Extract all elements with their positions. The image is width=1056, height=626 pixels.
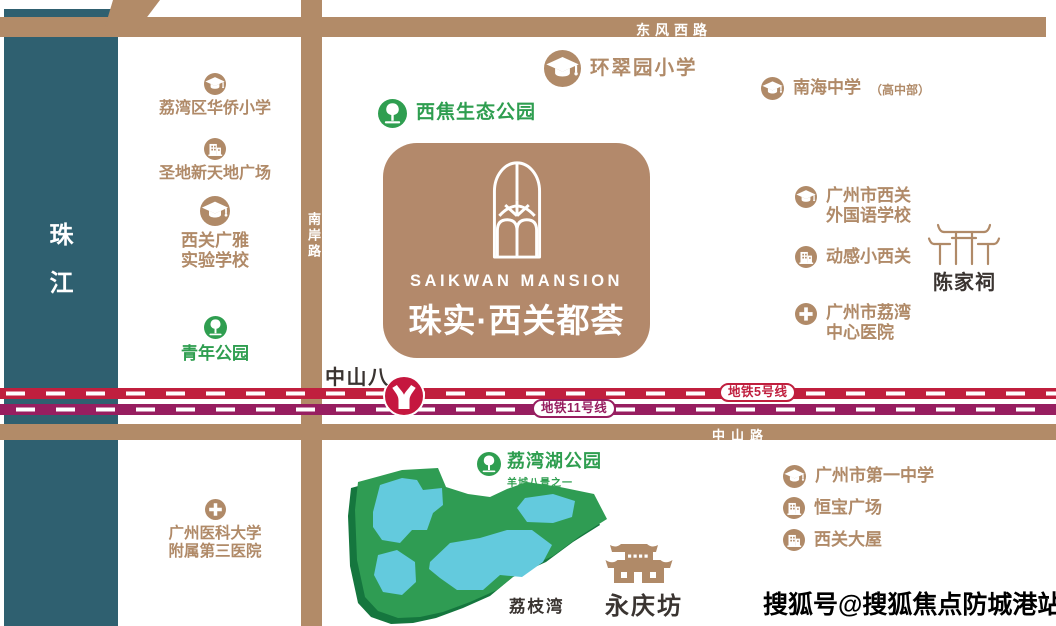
yongqingfang-label: 永庆坊 <box>605 586 683 621</box>
watermark: 搜狐号@搜狐焦点防城港站 <box>763 585 1056 621</box>
poi-donggan-xiao-xiguan: 动感小西关 <box>795 246 911 268</box>
hospital-cross-icon <box>795 303 817 325</box>
poi-liwan-central-hospital: 广州市荔湾 中心医院 <box>795 303 911 343</box>
building-icon <box>783 497 805 519</box>
metro-station-label: 中山八 <box>325 361 390 390</box>
school-icon <box>200 196 230 226</box>
river-label: 珠江 <box>41 222 76 318</box>
property-name-zh: 珠实·西关都荟 <box>409 294 625 342</box>
poi-guangzhou-no1-middle-school: 广州市第一中学 <box>783 465 934 488</box>
yongqingfang-landmark: 永庆坊 <box>598 534 690 621</box>
school-icon <box>783 465 806 488</box>
poi-youth-park: 青年公园 <box>115 316 315 364</box>
school-icon <box>795 186 817 208</box>
poi-liwanqu-huaqiao-primary-school: 荔湾区华侨小学 <box>115 73 315 119</box>
poi-shengdi-xintiandi-plaza: 圣地新天地广场 <box>115 138 315 184</box>
poi-nanhai-middle-school: 南海中学 （高中部） <box>761 77 930 100</box>
road-zhongshan <box>0 424 1056 440</box>
chenjiaci-archway-icon <box>929 225 999 264</box>
property-name-en: SAIKWAN MANSION <box>410 272 623 291</box>
metro-lines <box>0 388 1056 415</box>
building-icon <box>204 138 226 160</box>
liwan-lake-park-name: 荔湾湖公园 <box>507 452 602 472</box>
metro-line5-badge: 地铁5号线 <box>719 383 796 402</box>
metro-station-zhongshanba <box>384 376 424 416</box>
hospital-cross-icon <box>205 499 226 520</box>
building-icon <box>783 529 805 551</box>
road-label-dongfeng-west: 东风西路 <box>636 20 712 40</box>
liwan-lake-park-subtitle: 羊城八景之一 <box>507 474 602 489</box>
park-tree-icon <box>204 316 227 339</box>
poi-hengbao-plaza: 恒宝广场 <box>783 497 882 519</box>
park-tree-icon <box>477 452 501 476</box>
lizhiwan-label: 荔枝湾 <box>509 593 565 617</box>
poi-liwan-lake-park: 荔湾湖公园 羊城八景之一 <box>477 452 602 489</box>
metro-line11-badge: 地铁11号线 <box>532 399 616 418</box>
poi-xijiao-eco-park: 西焦生态公园 <box>378 99 536 128</box>
chenjiaci-label: 陈家祠 <box>933 266 996 295</box>
project-location-map: 珠江 南岸路 东风西路 中山路 地铁5号线 地铁11号线 中山八 SAIKWAN… <box>0 0 1056 626</box>
poi-xiguan-foreign-language-school: 广州市西关 外国语学校 <box>795 186 911 226</box>
poi-xiguan-dawu: 西关大屋 <box>783 529 882 551</box>
poi-gz-medical-univ-third-hospital: 广州医科大学 附属第三医院 <box>115 499 315 562</box>
school-icon <box>544 50 581 87</box>
park-tree-icon <box>378 99 407 128</box>
xiguan-window-icon <box>491 156 543 260</box>
property-card: SAIKWAN MANSION 珠实·西关都荟 <box>383 143 650 358</box>
school-icon <box>761 77 784 100</box>
building-icon <box>795 246 817 268</box>
poi-huancuiyuan-primary-school: 环翠园小学 <box>544 50 698 87</box>
road-dongfeng-west <box>0 17 1046 37</box>
poi-xiguan-guangya-school: 西关广雅 实验学校 <box>115 196 315 271</box>
school-icon <box>204 73 226 95</box>
liwan-lake-park-shape <box>348 468 607 624</box>
road-label-zhongshan: 中山路 <box>712 425 769 444</box>
